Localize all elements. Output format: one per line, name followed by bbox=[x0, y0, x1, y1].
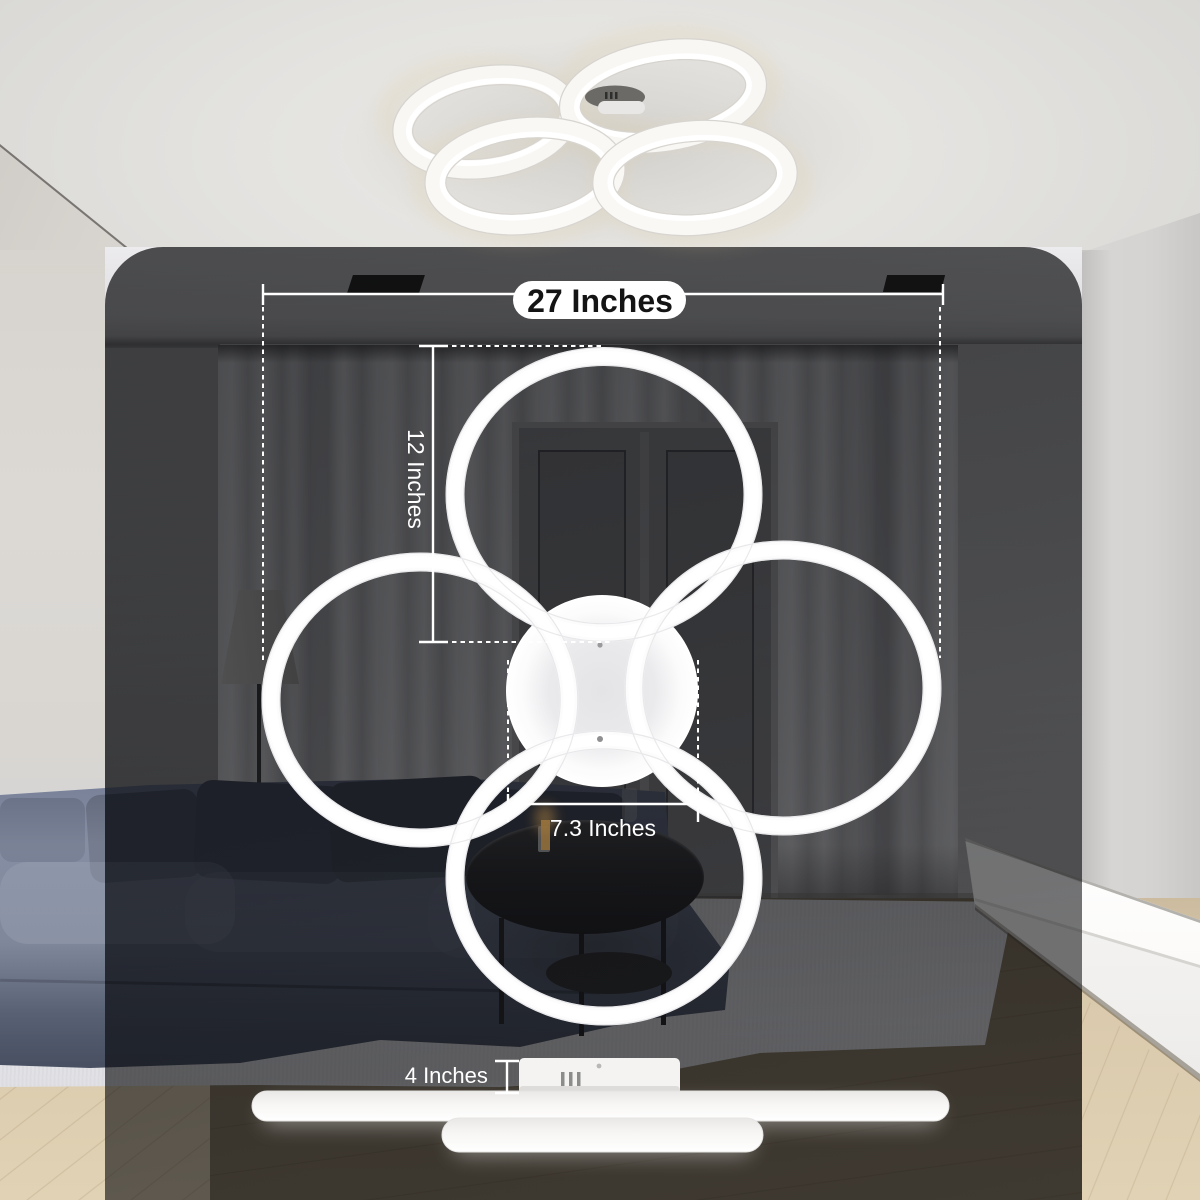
svg-text:4 Inches: 4 Inches bbox=[405, 1063, 494, 1088]
svg-text:12 Inches: 12 Inches bbox=[403, 429, 429, 529]
svg-text:27 Inches: 27 Inches bbox=[527, 283, 673, 319]
svg-text:7.3 Inches: 7.3 Inches bbox=[550, 815, 656, 841]
